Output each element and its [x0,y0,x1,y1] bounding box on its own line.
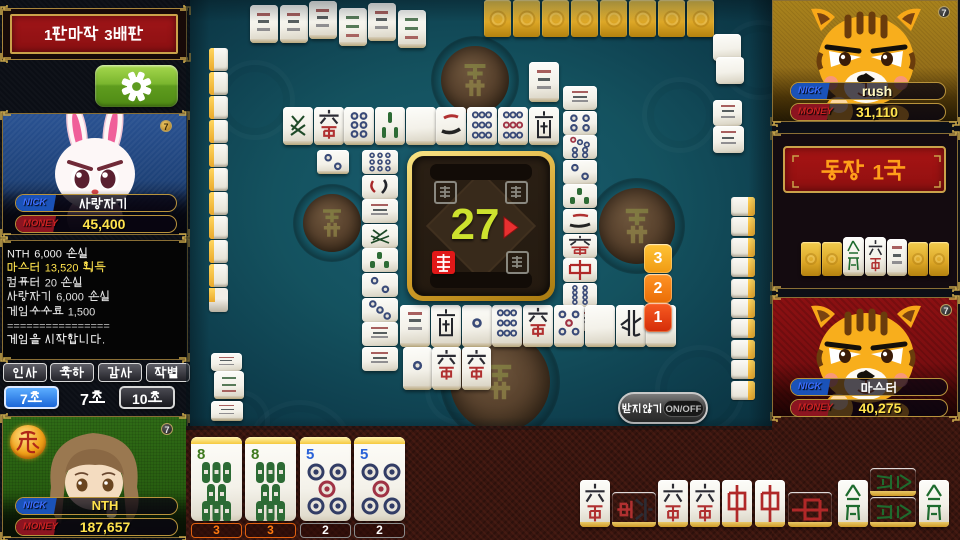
svg-text:3: 3 [104,27,112,44]
svg-text:7: 7 [20,391,28,407]
svg-text:6,000: 6,000 [34,249,62,261]
svg-text:8: 8 [197,446,205,463]
svg-text:NTH: NTH [7,249,30,261]
svg-text:================: ================ [7,321,110,333]
svg-text:13,520: 13,520 [45,263,79,275]
svg-text:5: 5 [360,446,368,463]
svg-text:5: 5 [306,446,314,463]
svg-text:10: 10 [132,391,148,407]
svg-text:1,500: 1,500 [68,306,96,318]
svg-text:8: 8 [251,446,259,463]
svg-text:.: . [102,335,105,347]
svg-text:1: 1 [44,27,52,44]
svg-text:1: 1 [872,161,884,184]
svg-text:7: 7 [80,392,89,409]
svg-text:6,000: 6,000 [56,292,84,304]
svg-text:20: 20 [45,277,57,289]
